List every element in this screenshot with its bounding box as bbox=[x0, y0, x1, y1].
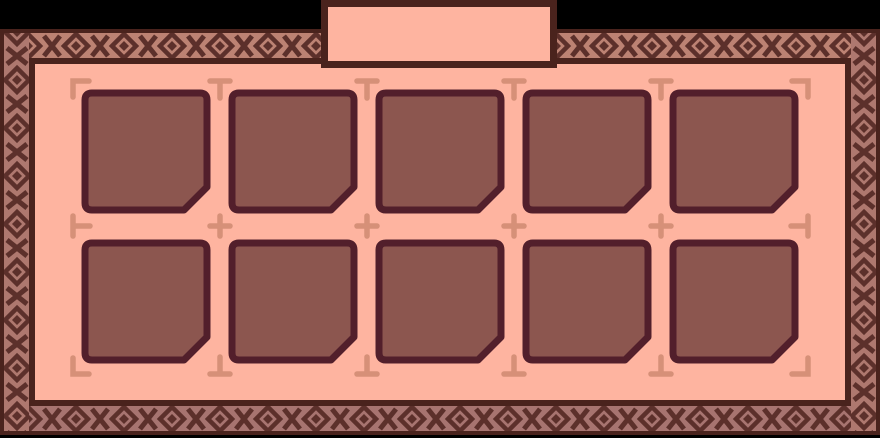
item-slot[interactable] bbox=[669, 239, 799, 366]
game-screen bbox=[0, 0, 880, 438]
item-slot[interactable] bbox=[375, 89, 505, 216]
item-slot[interactable] bbox=[228, 239, 358, 366]
item-slot[interactable] bbox=[81, 239, 211, 366]
item-slot[interactable] bbox=[522, 239, 652, 366]
item-slot[interactable] bbox=[522, 89, 652, 216]
item-slot[interactable] bbox=[669, 89, 799, 216]
item-slot[interactable] bbox=[81, 89, 211, 216]
panel-title-tab bbox=[321, 0, 557, 68]
item-slot[interactable] bbox=[228, 89, 358, 216]
item-slot[interactable] bbox=[375, 239, 505, 366]
